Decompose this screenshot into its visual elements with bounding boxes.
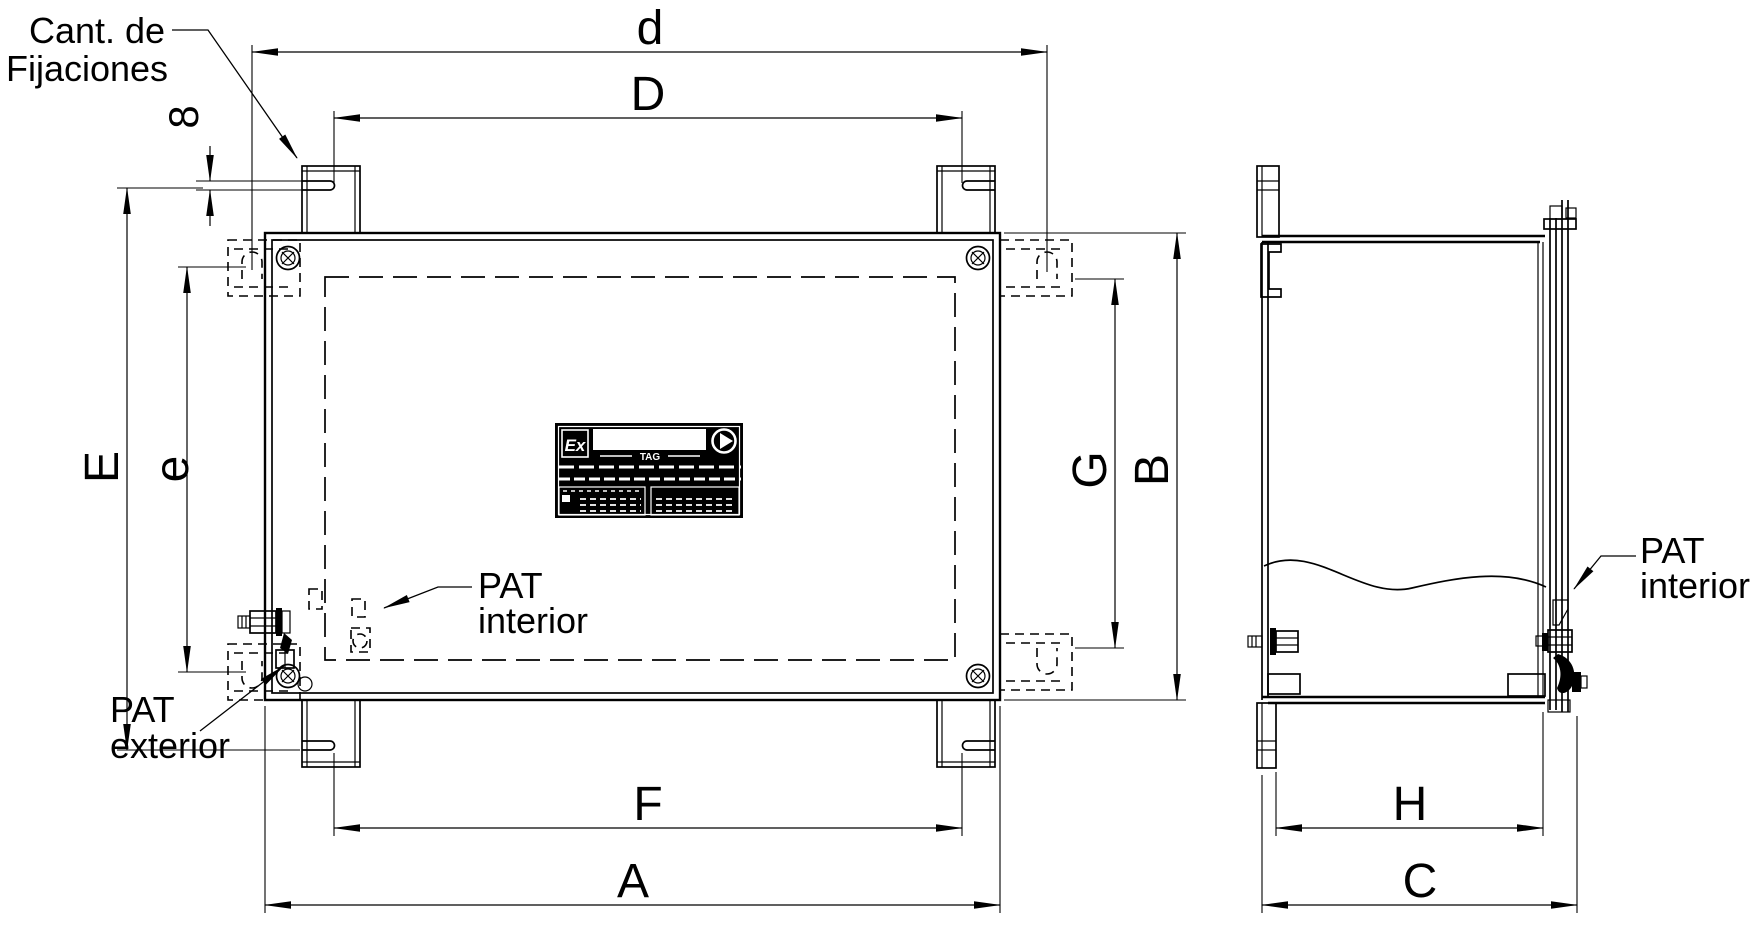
leader-line: [172, 30, 297, 158]
label-pat-interior-side: PAT interior: [1574, 530, 1750, 606]
leader-line: [200, 666, 284, 731]
hidden-side-bracket-bottom-right: [1000, 634, 1072, 690]
side-view: H C PAT interior: [1248, 166, 1750, 913]
break-line-wave: [1264, 560, 1546, 590]
dimension-D: D: [334, 68, 962, 183]
lid-screw-top-left: [277, 247, 300, 270]
leader-line: [384, 587, 472, 608]
mounting-tab-top-right: [937, 166, 995, 233]
pat-interior-line2: interior: [478, 600, 588, 641]
leader-line: [1574, 556, 1636, 589]
extension-line: [196, 181, 302, 190]
mounting-tab-bottom-right: [937, 700, 995, 767]
dim-label-e: e: [146, 456, 199, 483]
dim-label-G: G: [1064, 451, 1117, 488]
mounting-tab-bottom-profile: [1257, 703, 1276, 768]
dim-label-E: E: [76, 451, 129, 483]
dim-label-F: F: [633, 778, 662, 831]
mounting-tab-top-profile: [1257, 166, 1279, 237]
dimension-d: d: [252, 2, 1047, 272]
pat-exterior-line2: exterior: [110, 725, 230, 766]
label-pat-interior-front: PAT interior: [384, 565, 588, 641]
side-bracket-profile: [1261, 244, 1281, 297]
enclosure-dimension-drawing: Ex TAG: [0, 0, 1754, 929]
label-pat-exterior: PAT exterior: [110, 666, 284, 766]
mounting-tab-top-left: [302, 166, 360, 233]
front-view: Ex TAG: [6, 2, 1186, 913]
box-left-wall: [1262, 242, 1268, 700]
technical-drawing-page: Ex TAG: [0, 0, 1754, 929]
box-bottom-edge: [1262, 697, 1545, 703]
tag-label: TAG: [640, 452, 661, 463]
pat-exterior-line1: PAT: [110, 689, 175, 730]
dimension-H: H: [1276, 712, 1543, 836]
dim-label-H: H: [1393, 778, 1428, 831]
dim-label-8: 8: [160, 105, 207, 128]
lid-top-bracket: [1544, 219, 1576, 229]
pat-interior-terminal-side: [1508, 600, 1587, 696]
dimension-slot-width-8: 8: [160, 105, 302, 226]
dim-label-D: D: [631, 68, 666, 121]
ex-logo-text: Ex: [565, 436, 587, 455]
dim-label-d: d: [637, 2, 664, 55]
mounting-tab-bottom-left: [302, 700, 360, 767]
dimension-F: F: [334, 753, 962, 836]
lid-top-bracket: [1550, 206, 1562, 219]
dim-label-B: B: [1126, 454, 1179, 486]
hidden-side-bracket-top-right: [1000, 240, 1072, 296]
fixings-label-line2: Fijaciones: [6, 48, 168, 89]
dimension-G: G: [1064, 279, 1124, 648]
tag-field: [593, 429, 706, 450]
pat-interior-symbol: [309, 589, 370, 652]
fixings-label-line1: Cant. de: [29, 10, 165, 51]
hidden-slot: [242, 661, 262, 688]
lid-screw-bottom-right: [967, 665, 990, 688]
hidden-slot: [1037, 648, 1057, 674]
lid-screw-top-right: [967, 247, 990, 270]
pat-interior-side-line2: interior: [1640, 565, 1750, 606]
dim-label-C: C: [1403, 855, 1438, 908]
dim-label-A: A: [617, 855, 649, 908]
dimension-e: e: [146, 267, 246, 672]
box-top-edge: [1262, 236, 1545, 242]
lid-bottom-foot: [1548, 700, 1570, 712]
side-bracket-foot: [1268, 674, 1300, 694]
wall-earth-stud: [1248, 628, 1298, 655]
label-fixings-count: Cant. de Fijaciones: [6, 10, 297, 158]
